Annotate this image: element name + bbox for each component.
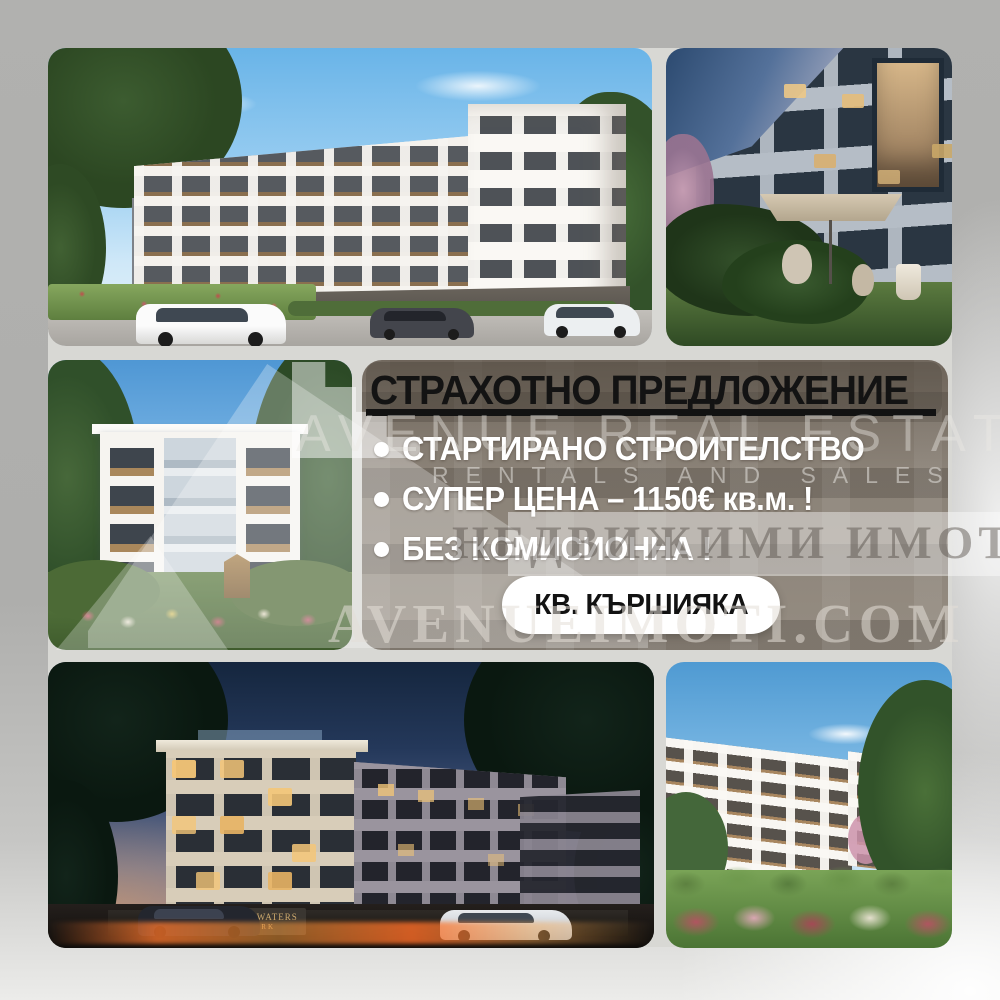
car-wheels xyxy=(556,326,568,338)
offer-bullet-2: СУПЕР ЦЕНА – 1150€ кв.м. ! xyxy=(374,480,839,518)
bullet-dot-icon xyxy=(374,492,389,507)
lit-interior-window xyxy=(872,58,944,192)
photo-complex-garden-day xyxy=(666,662,952,948)
lit-windows xyxy=(784,84,806,98)
car-windows xyxy=(156,308,248,322)
offer-bullet-2-text: СУПЕР ЦЕНА – 1150€ кв.м. ! xyxy=(402,480,813,518)
white-suv xyxy=(544,304,640,336)
location-badge: КВ. КЪРШИЯКА xyxy=(502,576,780,634)
offer-bullet-3: БЕЗ КОМИСИОННА ! xyxy=(374,530,731,568)
planter-pot xyxy=(896,264,921,300)
photo-building-day-street: BLUE WATERS PARK xyxy=(48,48,652,346)
photo-building-night-street: BLUE WATERS PARK xyxy=(48,662,654,948)
offer-content: СТРАХОТНО ПРЕДЛОЖЕНИЕ СТАРТИРАНО СТРОИТЕ… xyxy=(362,360,948,650)
title-underline xyxy=(366,409,936,416)
parasol-pole xyxy=(829,220,832,284)
location-badge-text: КВ. КЪРШИЯКА xyxy=(534,589,748,622)
car-windows xyxy=(556,307,614,318)
car-windows xyxy=(154,909,224,919)
car-windows xyxy=(384,311,446,321)
car-wheels xyxy=(158,332,173,346)
lit-windows-front xyxy=(172,760,196,778)
hanging-chairs xyxy=(782,244,812,284)
white-car xyxy=(136,304,286,344)
flower-bed xyxy=(66,600,334,636)
headlight-streaks xyxy=(48,922,654,944)
photo-building-garden-dusk xyxy=(666,48,952,346)
offer-bullet-1-text: СТАРТИРАНО СТРОИТЕЛСТВО xyxy=(402,430,864,468)
photo-building-front-elevation xyxy=(48,360,352,650)
bullet-dot-icon xyxy=(374,542,389,557)
building-far-wing xyxy=(520,790,640,908)
flower-bushes xyxy=(666,894,952,942)
promo-flyer: BLUE WATERS PARK xyxy=(0,0,1000,1000)
parasol-umbrella xyxy=(760,194,902,221)
dark-car xyxy=(370,308,474,338)
car-wheels xyxy=(384,329,395,340)
playground-tower xyxy=(224,554,250,598)
offer-bullet-1: СТАРТИРАНО СТРОИТЕЛСТВО xyxy=(374,430,894,468)
bullet-dot-icon xyxy=(374,442,389,457)
lit-windows-side xyxy=(378,784,394,796)
offer-title: СТРАХОТНО ПРЕДЛОЖЕНИЕ xyxy=(370,367,908,414)
offer-bullet-3-text: БЕЗ КОМИСИОННА ! xyxy=(402,530,712,568)
